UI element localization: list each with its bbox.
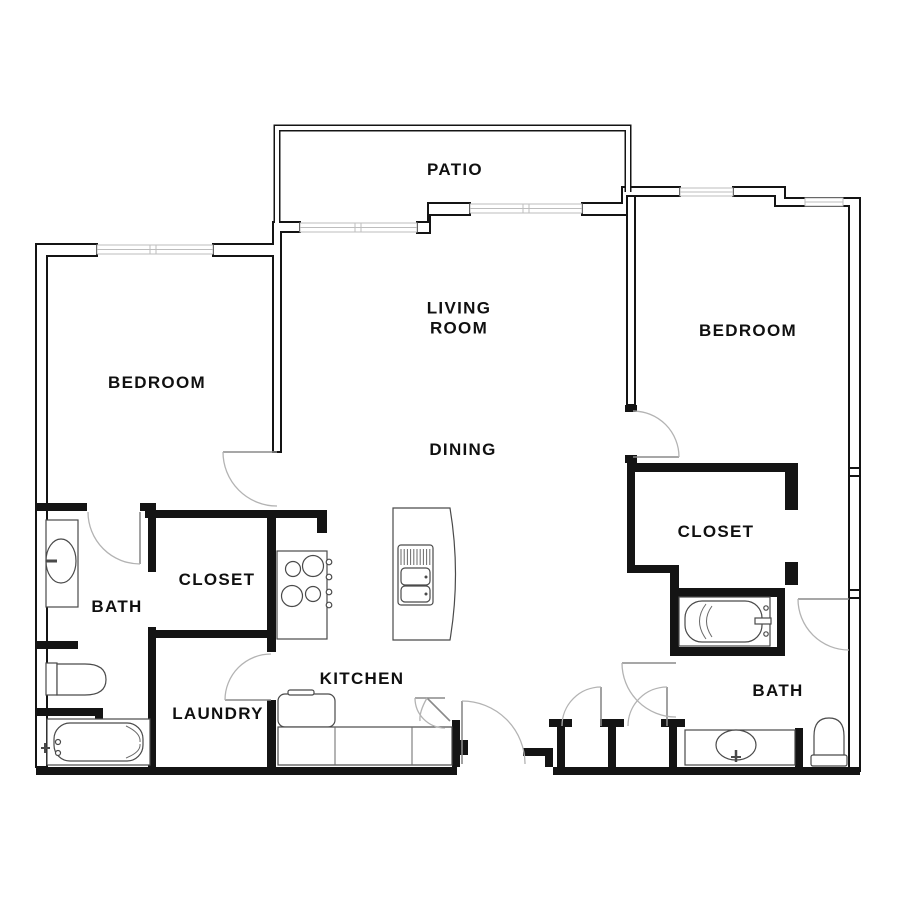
room-label-bedroom-right: BEDROOM — [699, 321, 797, 341]
door-arc-dishwasher — [420, 698, 427, 721]
burner-icon — [306, 587, 321, 602]
kitchen-counter-symbol — [278, 727, 452, 765]
tub-handle-icon — [764, 606, 768, 610]
living-room-window-2 — [470, 204, 582, 213]
door-arc-bedroom-left — [223, 452, 277, 506]
room-label-dining: DINING — [429, 440, 496, 460]
stove-knob-icon — [326, 574, 332, 580]
windows — [97, 188, 843, 254]
room-label-closet-right: CLOSET — [678, 522, 755, 542]
bedroom-left-window — [97, 245, 213, 254]
room-label-laundry: LAUNDRY — [172, 704, 264, 724]
bedroom-right-window-corner — [805, 198, 843, 206]
kitchen-fixtures — [277, 508, 456, 765]
tub-handle-icon — [56, 751, 61, 756]
bathtub-right-basin — [685, 601, 762, 642]
wall-bedroom1-top-and-center-partition — [213, 222, 300, 452]
bathtub-left-basin — [54, 723, 143, 761]
bedroom-right-window-top — [680, 188, 733, 196]
stove-knob-icon — [326, 559, 332, 565]
toilet-right-base — [811, 755, 847, 766]
sink-drain-icon — [425, 576, 428, 579]
tub-handle-icon — [764, 632, 768, 636]
room-label-kitchen: KITCHEN — [320, 669, 405, 689]
door-arc-bedroom-right — [633, 411, 679, 457]
toilet-left-bowl — [57, 664, 106, 695]
stove-knob-icon — [326, 589, 332, 595]
burner-icon — [282, 586, 303, 607]
door-arc-entry — [462, 701, 525, 764]
toilet-left-tank — [46, 663, 57, 695]
door-arc-bath-right — [622, 663, 676, 717]
room-label-patio: PATIO — [427, 160, 483, 180]
wall-livingroom-top-step — [417, 203, 470, 233]
door-leaf-dishwasher — [427, 698, 450, 721]
toilet-right-bowl — [814, 718, 844, 758]
burner-icon — [286, 562, 301, 577]
burner-icon — [303, 556, 324, 577]
floor-plan: PATIO LIVING ROOM BEDROOM BEDROOM DINING… — [0, 0, 900, 900]
door-arc-bedroom-right-bath — [798, 599, 849, 650]
door-arc-laundry — [225, 654, 271, 700]
door-arc-entry-closet — [415, 698, 445, 728]
room-label-bath-right: BATH — [752, 681, 803, 701]
sink-drain-icon — [425, 593, 428, 596]
room-label-living-room: LIVING ROOM — [407, 299, 511, 340]
exterior-walls — [36, 187, 860, 771]
room-label-bedroom-left: BEDROOM — [108, 373, 206, 393]
refrigerator-symbol — [278, 694, 335, 727]
tub-handle-icon — [56, 740, 61, 745]
living-room-window-1 — [300, 223, 417, 232]
door-arc-bath-left — [88, 512, 140, 564]
refrigerator-handle — [288, 690, 314, 695]
tub-spout-icon — [755, 618, 771, 624]
room-label-closet-left: CLOSET — [179, 570, 256, 590]
room-label-bath-left: BATH — [91, 597, 142, 617]
stove-knob-icon — [326, 602, 332, 608]
wall-bedroom2-left-partition — [627, 196, 635, 405]
